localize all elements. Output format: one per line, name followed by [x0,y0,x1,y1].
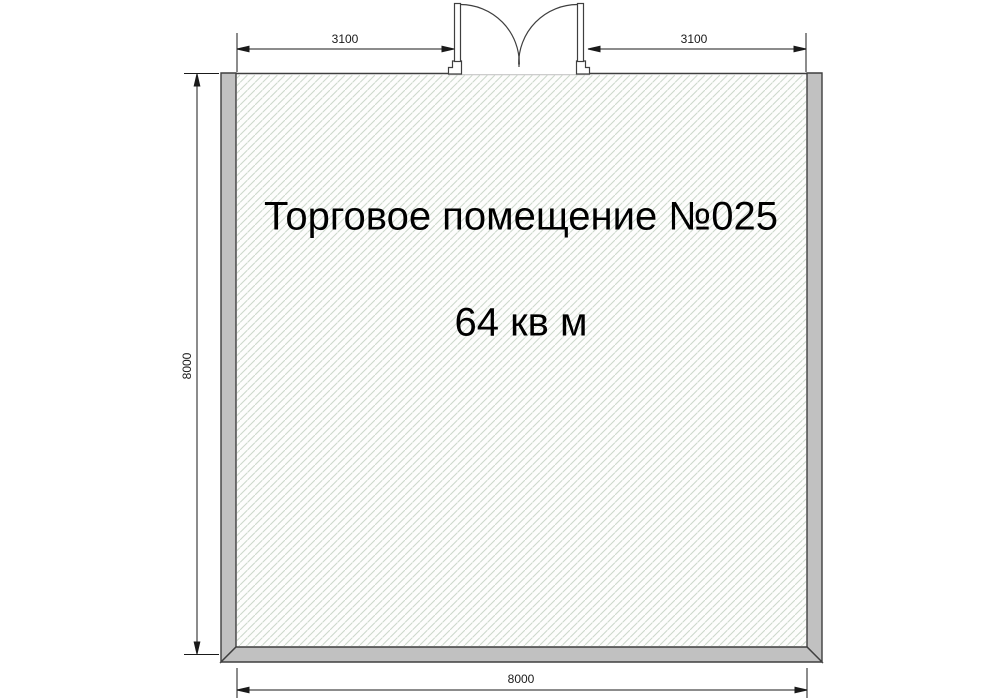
door-jamb-left [449,61,462,74]
room-floor-hatch [237,75,806,646]
door-swing-arc-right [519,5,578,65]
dim-arrow [194,642,200,654]
room-area-label: 64 кв м [455,301,588,346]
floor-plan-drawing [0,0,1000,700]
dim-arrow [237,46,249,52]
double-door [449,4,590,75]
dimension-label-bottom: 8000 [508,672,535,686]
wall-left [221,73,236,662]
wall-bottom [221,647,822,662]
dimension-label-top-right: 3100 [681,32,708,46]
dim-arrow [194,74,200,86]
floor-plan: Торговое помещение №025 64 кв м 3100 310… [0,0,1000,700]
room-name-label: Торговое помещение №025 [264,195,778,240]
dimension-label-top-left: 3100 [332,32,359,46]
door-leaf-right [578,4,584,62]
dim-arrow [795,687,807,693]
dim-arrow [588,46,600,52]
wall-right [807,73,822,662]
dim-arrow [237,687,249,693]
dimension-label-left: 8000 [180,353,194,380]
door-swing-arc-left [461,5,520,65]
door-jamb-right [577,61,590,74]
door-leaf-left [455,4,461,62]
dim-arrow [442,46,454,52]
dim-arrow [794,46,806,52]
